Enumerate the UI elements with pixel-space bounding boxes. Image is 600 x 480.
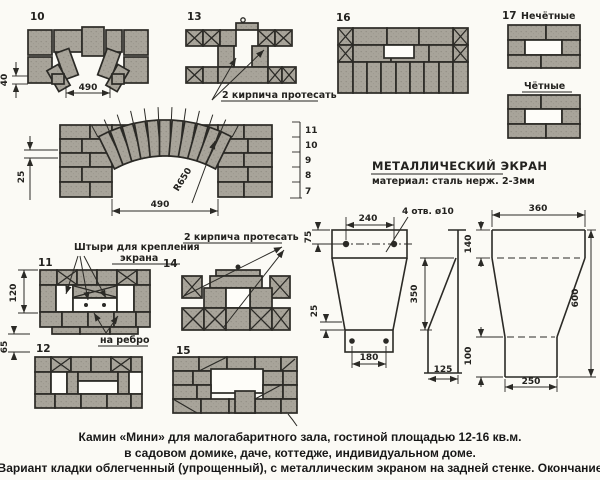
brick <box>60 167 82 182</box>
brick <box>82 167 112 182</box>
brick <box>136 312 150 327</box>
dim-label-240: 240 <box>359 214 378 224</box>
brick <box>114 312 136 327</box>
brick <box>220 30 236 46</box>
metal-screen-title: МЕТАЛЛИЧЕСКИЙ ЭКРАН <box>372 158 547 173</box>
brick <box>216 270 260 276</box>
brick <box>137 270 150 285</box>
brick <box>396 62 410 93</box>
brick <box>283 385 297 399</box>
brick <box>60 139 82 153</box>
brick <box>508 55 541 68</box>
brick <box>235 391 255 413</box>
brick <box>78 372 118 381</box>
brick <box>210 276 262 288</box>
brick <box>353 62 367 93</box>
brick <box>424 62 439 93</box>
caption-line3: Вариант кладки облегченный (упрощенный),… <box>0 461 600 475</box>
brick <box>244 182 272 197</box>
brick <box>353 28 387 45</box>
brick <box>124 30 148 55</box>
brick <box>338 62 353 93</box>
brick <box>562 109 580 124</box>
brick <box>28 30 52 55</box>
brick <box>77 270 97 285</box>
caption-line1: Камин «Мини» для малогабаритного зала, г… <box>78 430 521 444</box>
dim-label-360: 360 <box>529 204 548 214</box>
brick <box>546 25 580 40</box>
brick <box>218 67 268 83</box>
brickwork-arch <box>60 107 272 197</box>
dim-240: 240 <box>346 214 394 240</box>
brick <box>419 28 453 45</box>
brick <box>112 74 124 84</box>
row-number-11: 11 <box>305 126 318 136</box>
opening <box>525 40 562 55</box>
brickwork-row15 <box>173 357 297 413</box>
screen-pin <box>84 303 88 307</box>
opening <box>56 285 73 312</box>
opening <box>384 45 414 58</box>
brick <box>203 67 218 83</box>
brickwork-row12 <box>35 357 142 408</box>
brick <box>107 394 131 408</box>
brick <box>283 371 297 385</box>
brick <box>67 372 78 394</box>
brick <box>252 46 268 67</box>
drawing-17-number: 17 <box>502 10 517 22</box>
drawing-arch-elevation: 25 R650 490 11 10 9 8 7 <box>17 107 318 216</box>
brick <box>193 371 211 385</box>
brick <box>131 394 142 408</box>
brick <box>367 62 381 93</box>
brick <box>60 153 90 167</box>
brick <box>218 46 234 67</box>
dim-label-490-top: 490 <box>79 83 98 93</box>
dim-label-75: 75 <box>304 231 314 244</box>
drawing-15-number: 15 <box>176 345 191 357</box>
even-rows-label: Чётные <box>524 81 565 92</box>
row-number-8: 8 <box>305 171 311 181</box>
brick <box>218 182 244 197</box>
brick <box>244 153 272 167</box>
brick <box>81 394 107 408</box>
dim-label-25-lip: 25 <box>310 305 320 318</box>
brick <box>40 312 62 327</box>
brick <box>204 288 226 308</box>
brick <box>35 372 51 394</box>
scan-mark <box>288 414 297 426</box>
brick <box>40 285 56 312</box>
fireplace-masonry-drawing: 10 40 490 25 R650 <box>0 0 600 480</box>
dim-490-arch: 490 <box>112 199 218 216</box>
brick <box>40 270 57 285</box>
dim-label-125: 125 <box>434 365 453 375</box>
mount-hole <box>391 241 397 247</box>
on-edge-note: на ребро <box>100 335 150 346</box>
opening <box>51 372 67 394</box>
hew-note-13-label: 2 кирпича протесать <box>222 90 337 101</box>
brick <box>248 167 272 182</box>
brick <box>508 40 525 55</box>
dim-490-top: 490 <box>66 83 110 98</box>
drawing-10-number: 10 <box>30 11 45 23</box>
pin-circle <box>241 18 245 22</box>
brick <box>82 27 104 56</box>
brickwork-row10 <box>28 27 148 92</box>
scanned-blueprint-page: 10 40 490 25 R650 <box>0 0 600 480</box>
dim-label-140: 140 <box>464 235 474 254</box>
row-number-scale: 11 10 9 8 7 <box>290 122 318 198</box>
dim-65: 65 <box>0 326 30 360</box>
brick <box>381 62 396 93</box>
brick <box>387 28 419 45</box>
brickwork-row13 <box>186 23 296 83</box>
brick <box>263 385 283 399</box>
brick <box>173 385 197 399</box>
dim-100: 100 <box>464 327 503 387</box>
dim-label-350: 350 <box>410 285 420 304</box>
brick <box>197 385 211 399</box>
brick <box>546 124 580 138</box>
brick <box>60 125 90 139</box>
screen-pin <box>102 303 106 307</box>
brickwork-row11 <box>40 270 150 334</box>
brick <box>248 139 272 153</box>
brick <box>541 95 580 109</box>
opening <box>73 298 117 312</box>
brick <box>52 74 64 84</box>
holes-note: 4 отв. ø10 <box>402 207 454 217</box>
brick <box>508 25 546 40</box>
brick <box>263 371 283 385</box>
drawing-13-number: 13 <box>187 11 202 23</box>
dim-40: 40 <box>0 62 28 98</box>
dim-600: 600 <box>559 230 596 377</box>
brick <box>541 55 580 68</box>
dim-125: 125 <box>428 365 458 384</box>
brick <box>35 357 51 372</box>
dim-25: 25 <box>17 136 58 200</box>
dim-label-25: 25 <box>17 171 27 184</box>
pins-note-line2: экрана <box>120 253 158 264</box>
metal-screen-development-view: 360 140 600 100 250 <box>464 204 596 392</box>
mount-hole <box>349 338 355 344</box>
brick <box>173 371 193 385</box>
brick <box>244 125 272 139</box>
drawing-row10: 10 40 490 <box>0 11 148 98</box>
brick <box>55 394 81 408</box>
brick <box>110 327 138 334</box>
brick <box>250 288 272 308</box>
dim-label-490-arch: 490 <box>151 200 170 210</box>
row-number-7: 7 <box>305 187 311 197</box>
hew-note-14-label: 2 кирпича протесать <box>184 232 299 243</box>
drawing-row15: 15 <box>173 345 297 426</box>
dim-label-600: 600 <box>571 289 581 308</box>
dim-label-100: 100 <box>464 347 474 366</box>
brick <box>91 357 111 372</box>
brick <box>508 109 525 124</box>
brick <box>52 327 80 334</box>
dim-label-120: 120 <box>9 284 19 303</box>
mount-hole <box>383 338 389 344</box>
caption-line2: в садовом домике, даче, коттедже, индиви… <box>124 446 476 460</box>
opening <box>129 372 142 394</box>
opening <box>117 285 134 312</box>
drawing-11-number: 11 <box>38 257 53 269</box>
brick <box>118 372 129 394</box>
dim-140: 140 <box>464 221 490 267</box>
brick <box>236 23 258 30</box>
dim-label-180: 180 <box>360 353 379 363</box>
radius-label: R650 <box>172 166 194 193</box>
brick <box>255 399 281 413</box>
brick <box>410 62 424 93</box>
metal-screen-header: МЕТАЛЛИЧЕСКИЙ ЭКРАН материал: сталь нерж… <box>371 158 547 187</box>
dim-360: 360 <box>492 204 585 227</box>
brick <box>173 357 199 371</box>
brickwork-row16 <box>338 28 468 93</box>
brick <box>201 399 229 413</box>
drawing-row13: 13 2 кирпича протесать <box>186 11 337 101</box>
opening <box>525 109 562 124</box>
brickwork-row14 <box>182 270 290 330</box>
brick <box>429 45 453 62</box>
brick <box>439 62 453 93</box>
caption-block: Камин «Мини» для малогабаритного зала, г… <box>0 430 600 475</box>
odd-rows-label: Нечётные <box>521 11 575 22</box>
brick <box>90 182 112 197</box>
dim-label-65: 65 <box>0 341 10 354</box>
brick <box>508 95 541 109</box>
dim-label-250: 250 <box>522 377 541 387</box>
brick <box>35 394 55 408</box>
brick <box>453 62 468 93</box>
brick <box>134 285 150 312</box>
brick <box>131 357 142 372</box>
drawing-row16: 16 <box>336 12 468 93</box>
dim-25-lip: 25 <box>310 305 344 338</box>
dim-75: 75 <box>304 222 340 252</box>
mount-hole <box>343 241 349 247</box>
brick <box>218 167 248 182</box>
dim-120: 120 <box>9 270 38 313</box>
brick <box>97 270 117 285</box>
metal-screen-material: материал: сталь нерж. 2-3мм <box>372 176 535 187</box>
dim-250: 250 <box>505 377 557 392</box>
dim-label-40: 40 <box>0 74 10 87</box>
drawing-12-number: 12 <box>36 343 51 355</box>
drawing-14-number: 14 <box>163 258 178 270</box>
brick <box>281 399 297 413</box>
brick <box>60 182 90 197</box>
pins-note-line1: Штыри для крепления <box>74 242 200 253</box>
row-number-10: 10 <box>305 141 318 151</box>
row-number-9: 9 <box>305 156 311 166</box>
drawing-16-number: 16 <box>336 12 351 24</box>
dim-180: 180 <box>352 346 386 368</box>
screen-side-profile: 350 125 <box>410 230 466 384</box>
brick <box>508 124 546 138</box>
opening <box>78 381 118 394</box>
opening <box>211 369 263 393</box>
drawing-row12: 12 <box>35 343 142 408</box>
brick <box>62 312 88 327</box>
metal-screen-front-view: 240 4 отв. ø10 75 25 180 <box>304 207 466 384</box>
drawing-row17: 17 Нечётные Чётные <box>502 10 580 138</box>
brick <box>562 40 580 55</box>
brick <box>71 357 91 372</box>
